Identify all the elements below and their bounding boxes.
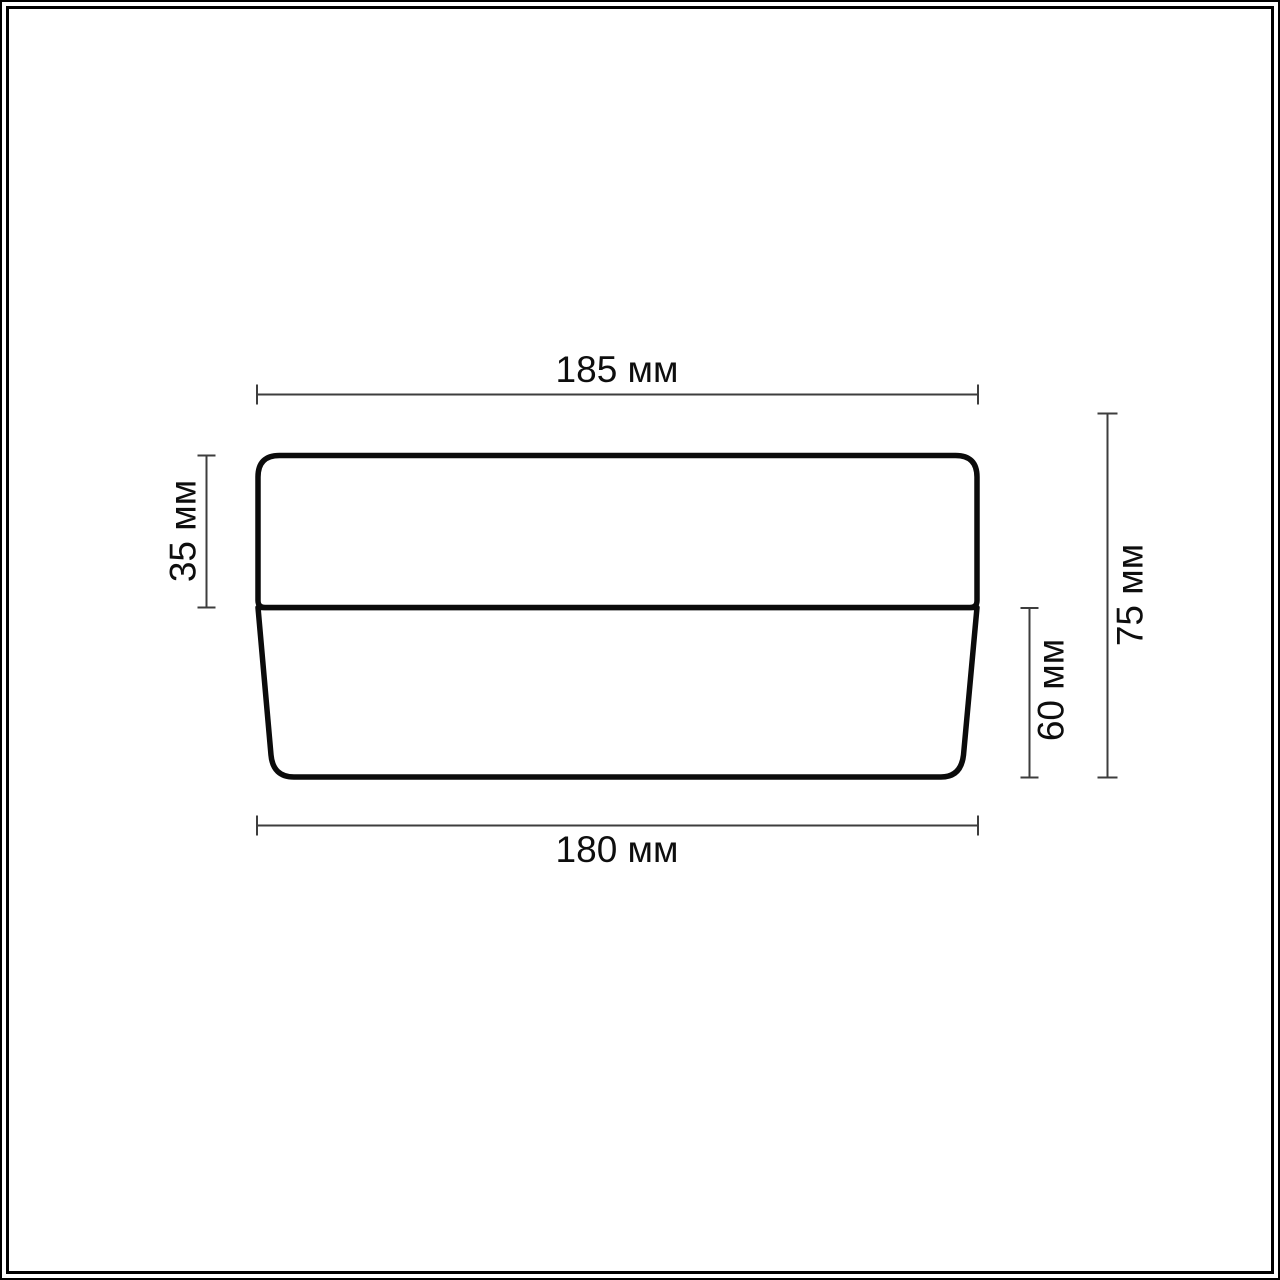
dim-label-top-width: 185 мм: [556, 349, 679, 390]
dim-label-upper-section-height: 35 мм: [163, 480, 204, 582]
dim-label-bottom-width: 180 мм: [556, 829, 679, 870]
drawing-canvas: 185 мм 180 мм 35 мм 60 мм 75: [0, 0, 1280, 1280]
lamp-diffuser-body: [258, 608, 977, 778]
lamp-canopy: [258, 456, 977, 608]
dimension-drawing: 185 мм 180 мм 35 мм 60 мм 75: [0, 0, 1280, 1280]
dim-label-total-height: 75 мм: [1110, 544, 1151, 646]
lamp-profile: [258, 456, 977, 778]
dim-upper-section-height: 35 мм: [163, 456, 216, 608]
dim-bottom-width: 180 мм: [257, 816, 978, 871]
dim-top-width: 185 мм: [257, 349, 978, 405]
dim-lower-section-height: 60 мм: [1021, 608, 1072, 778]
dim-label-lower-section-height: 60 мм: [1031, 639, 1072, 741]
dim-total-height: 75 мм: [1098, 414, 1151, 778]
